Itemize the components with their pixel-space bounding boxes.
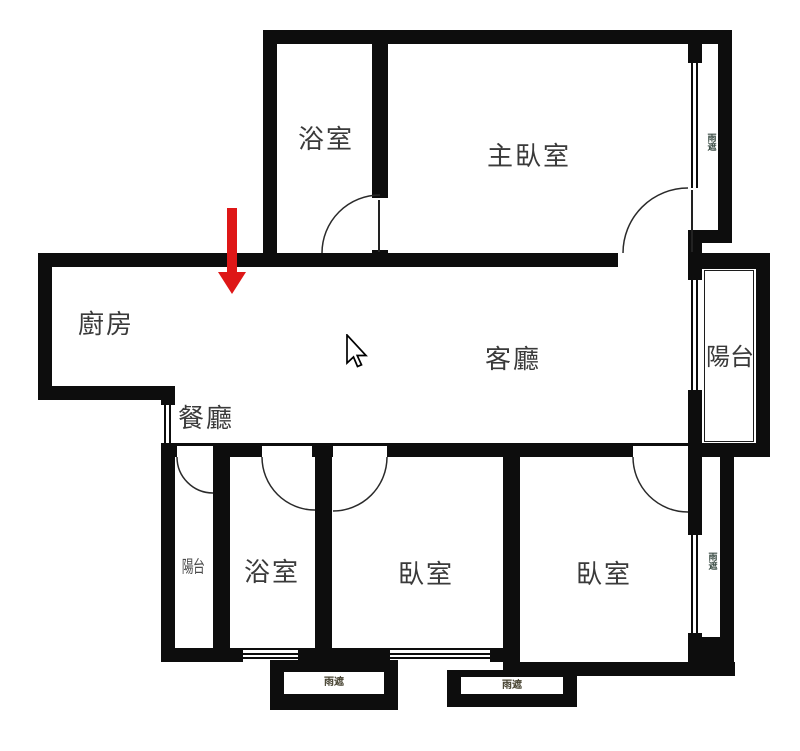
wall-master-right-top [688, 30, 702, 63]
door-gap-utility-balcony [177, 446, 213, 457]
wall-balcony-right [756, 253, 770, 457]
door-leaf-bathroom-top [378, 200, 380, 252]
rain-canopy-label-bottom-left: 雨遮 [324, 678, 344, 688]
wall-top [263, 30, 732, 44]
window-master-bedroom [688, 63, 702, 188]
wall-bedroom2-right-top [688, 457, 702, 535]
rain-canopy-box-left: 雨遮 [270, 660, 398, 710]
room-label-bathroom-top: 浴室 [298, 127, 354, 153]
room-label-dining: 餐廳 [178, 406, 234, 432]
door-leaf-master-bedroom [691, 190, 693, 252]
wall-kitchen-left [38, 253, 52, 400]
door-gap-bedroom-left [333, 446, 387, 457]
wall-upper-left [263, 30, 277, 267]
door-gap-bathroom-top [372, 198, 388, 250]
wall-divider-bedrooms [503, 443, 520, 662]
wall-kitchen-bottom [38, 386, 175, 400]
wall-canopy-block-bottom [702, 637, 720, 662]
red-arrow-head [218, 272, 246, 294]
floor-plan: 雨遮 雨遮 浴室 主臥室 廚房 餐廳 客廳 陽台 陽台 浴室 臥室 臥室 雨遮 … [0, 0, 800, 751]
room-label-bathroom-bottom: 浴室 [244, 560, 300, 586]
wall-mid-horizontal [38, 253, 618, 267]
wall-divider-utility-bath [213, 443, 230, 662]
room-label-bedroom-left: 臥室 [398, 562, 454, 588]
room-label-living: 客廳 [485, 347, 541, 373]
room-label-utility-balcony: 陽台 [182, 560, 204, 577]
wall-divider-bath-bedroom [315, 443, 332, 662]
rain-canopy-label-bottom-right-shaft: 雨遮 [707, 552, 716, 570]
window-dining [161, 405, 175, 443]
door-gap-bathroom-bottom [262, 446, 312, 457]
wall-lower-top [175, 443, 702, 457]
room-label-bedroom-right: 臥室 [576, 562, 632, 588]
rain-canopy-slot-left: 雨遮 [284, 672, 384, 694]
window-bedroom-right [688, 535, 702, 633]
rain-canopy-slot-right: 雨遮 [461, 677, 563, 694]
room-label-master-bedroom: 主臥室 [487, 144, 571, 170]
sliding-door-balcony [688, 280, 702, 390]
wall-balcony-divider-top [688, 267, 702, 280]
rain-canopy-label-top-right: 雨遮 [706, 133, 715, 151]
room-label-kitchen: 廚房 [78, 312, 134, 338]
red-arrow-annotation [227, 208, 237, 274]
wall-canopy-block-top [702, 230, 732, 243]
mouse-cursor-icon [345, 334, 369, 370]
window-bedroom-left [390, 650, 490, 662]
rain-canopy-label-bottom-right: 雨遮 [502, 681, 522, 691]
door-gap-master-bedroom [618, 256, 688, 267]
door-arcs-overlay [0, 0, 800, 751]
room-label-balcony: 陽台 [706, 345, 754, 369]
rain-canopy-box-right: 雨遮 [447, 670, 577, 707]
wall-outer-right-bottom [720, 457, 734, 676]
wall-bath-master-divider [372, 44, 388, 198]
door-gap-bedroom-right [633, 446, 688, 457]
wall-outer-right-top [718, 30, 732, 243]
